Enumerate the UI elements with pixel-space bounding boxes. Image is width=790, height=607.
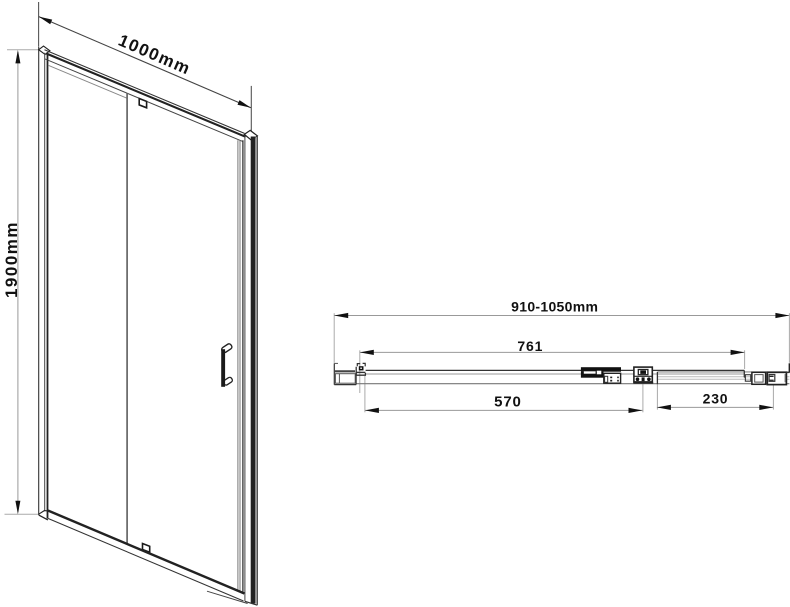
- svg-text:761: 761: [517, 338, 543, 354]
- svg-text:570: 570: [494, 394, 521, 411]
- svg-text:1900mm: 1900mm: [2, 221, 21, 298]
- svg-text:230: 230: [703, 391, 729, 407]
- svg-text:910-1050mm: 910-1050mm: [511, 298, 598, 314]
